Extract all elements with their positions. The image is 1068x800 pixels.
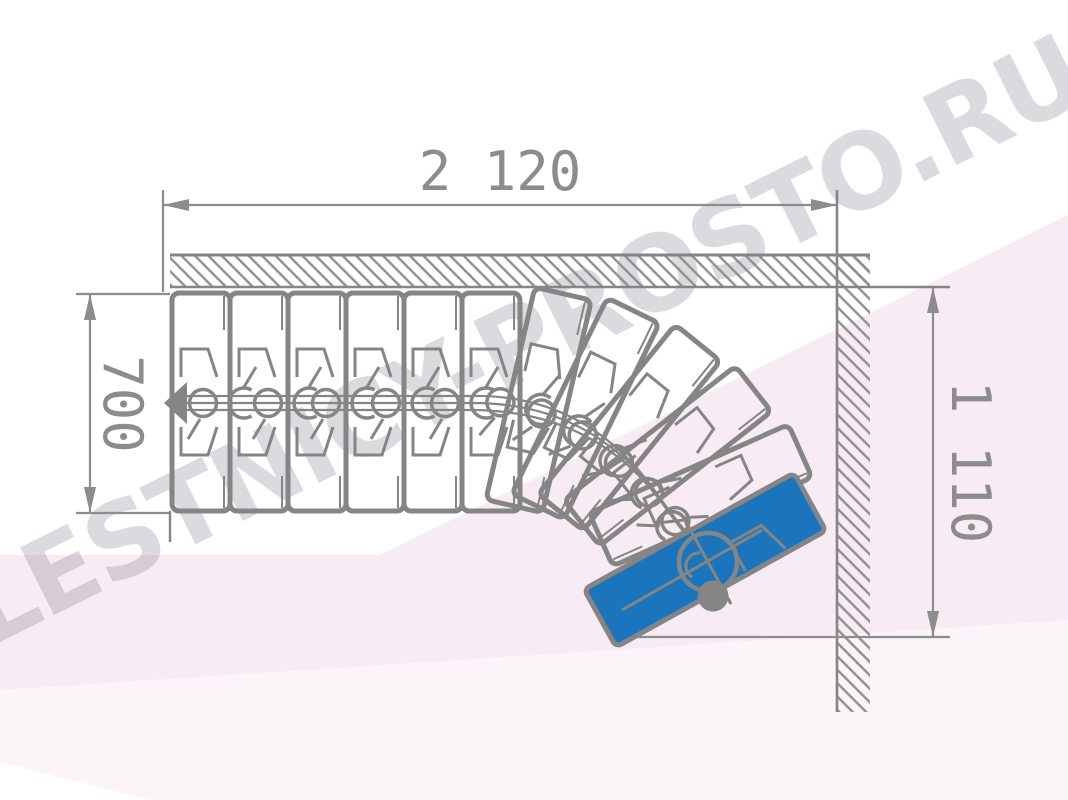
center-pole-dot: [698, 581, 729, 612]
dimension-left-label: 700: [91, 355, 154, 453]
plan-svg: LESTNICY-PROSTO.RU 2 120 700 1 110: [0, 0, 1068, 800]
dimension-right-label: 1 110: [939, 381, 1002, 544]
right-wall-hatch: [837, 255, 870, 712]
staircase-plan-drawing: LESTNICY-PROSTO.RU 2 120 700 1 110: [0, 0, 1068, 800]
top-wall-hatch: [170, 255, 870, 287]
dimension-top-label: 2 120: [419, 140, 582, 203]
